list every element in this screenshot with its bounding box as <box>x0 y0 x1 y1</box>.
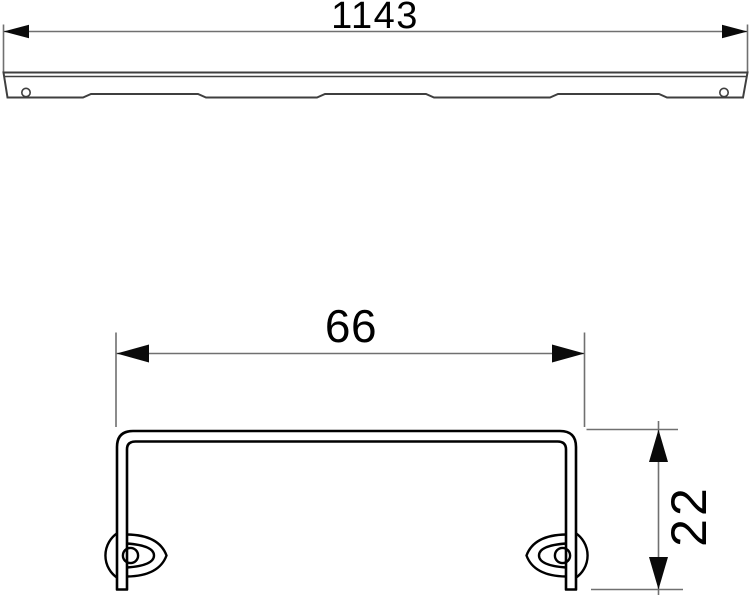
section-view: 66 22 <box>105 300 717 595</box>
length-arrow-left-icon <box>4 25 30 38</box>
side-view: 1143 <box>4 0 748 98</box>
clip-left-eye <box>127 535 167 577</box>
height-arrow-bottom-icon <box>649 557 668 590</box>
width-dimension-label: 66 <box>325 300 377 352</box>
clip-left-outer-crescent <box>105 533 117 578</box>
length-arrow-right-icon <box>722 25 748 38</box>
section-sheet-outline <box>117 431 576 590</box>
width-arrow-left-icon <box>117 345 150 363</box>
length-dimension-label: 1143 <box>331 0 419 37</box>
technical-drawing: 1143 66 <box>0 0 751 595</box>
clip-right-outer-crescent <box>576 533 588 578</box>
drawing-canvas: 1143 66 <box>0 0 751 595</box>
width-arrow-right-icon <box>552 345 585 363</box>
clip-right-eye <box>527 535 567 577</box>
height-dimension-label: 22 <box>661 485 717 547</box>
height-arrow-top-icon <box>649 430 668 463</box>
